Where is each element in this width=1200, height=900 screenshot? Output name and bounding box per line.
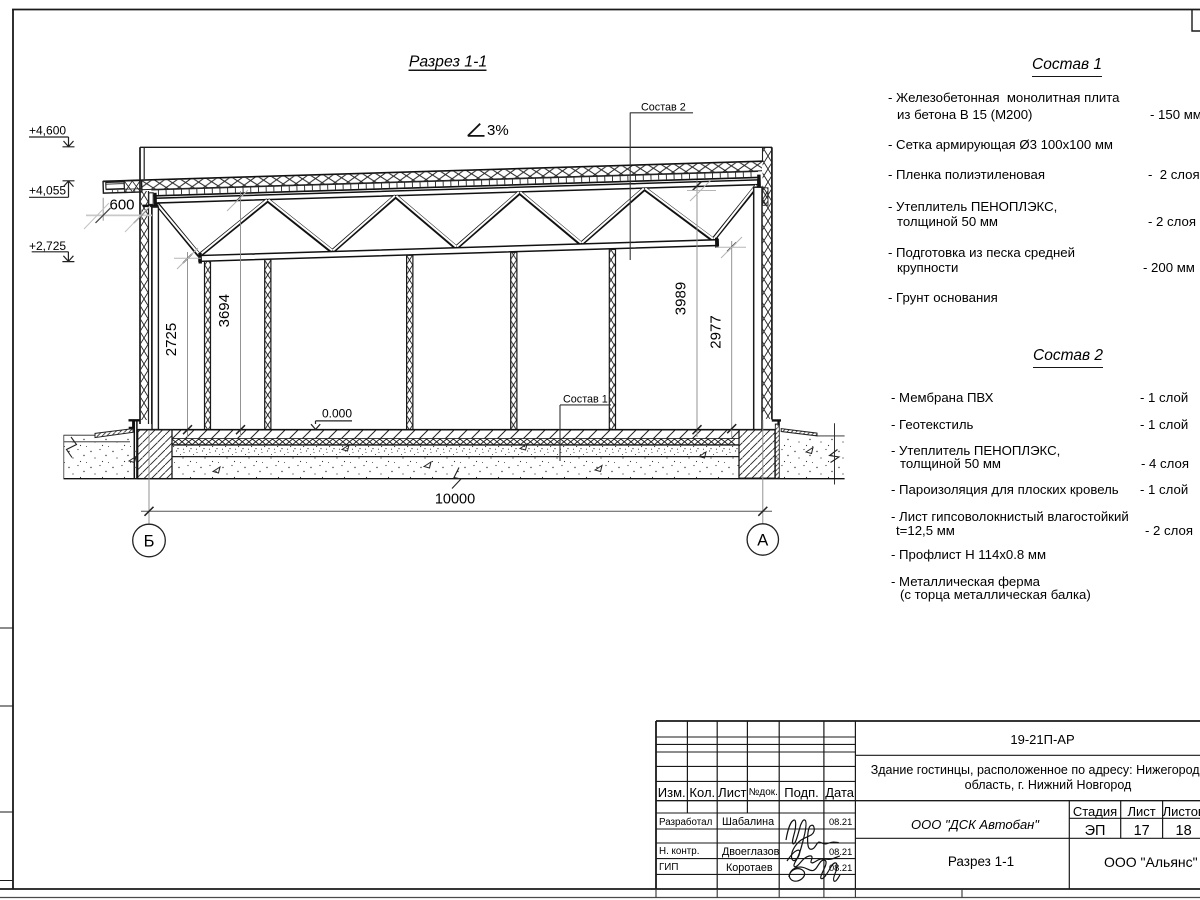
svg-text:+4,055: +4,055 [29,184,66,198]
svg-text:+2,725: +2,725 [29,239,66,253]
svg-text:Разрез 1-1: Разрез 1-1 [409,53,487,70]
svg-text:+4,600: +4,600 [29,124,66,138]
svg-text:3%: 3% [487,122,509,139]
svg-text:10000: 10000 [435,492,475,508]
svg-text:3694: 3694 [216,294,233,327]
svg-text:Состав 1: Состав 1 [563,394,608,406]
svg-text:2977: 2977 [708,315,725,348]
svg-text:2725: 2725 [163,323,180,356]
svg-text:Состав 2: Состав 2 [641,102,686,114]
svg-text:0.000: 0.000 [322,407,352,421]
svg-text:3989: 3989 [673,282,690,315]
svg-text:600: 600 [110,197,135,214]
svg-text:А: А [757,532,768,550]
svg-text:Б: Б [144,533,155,551]
